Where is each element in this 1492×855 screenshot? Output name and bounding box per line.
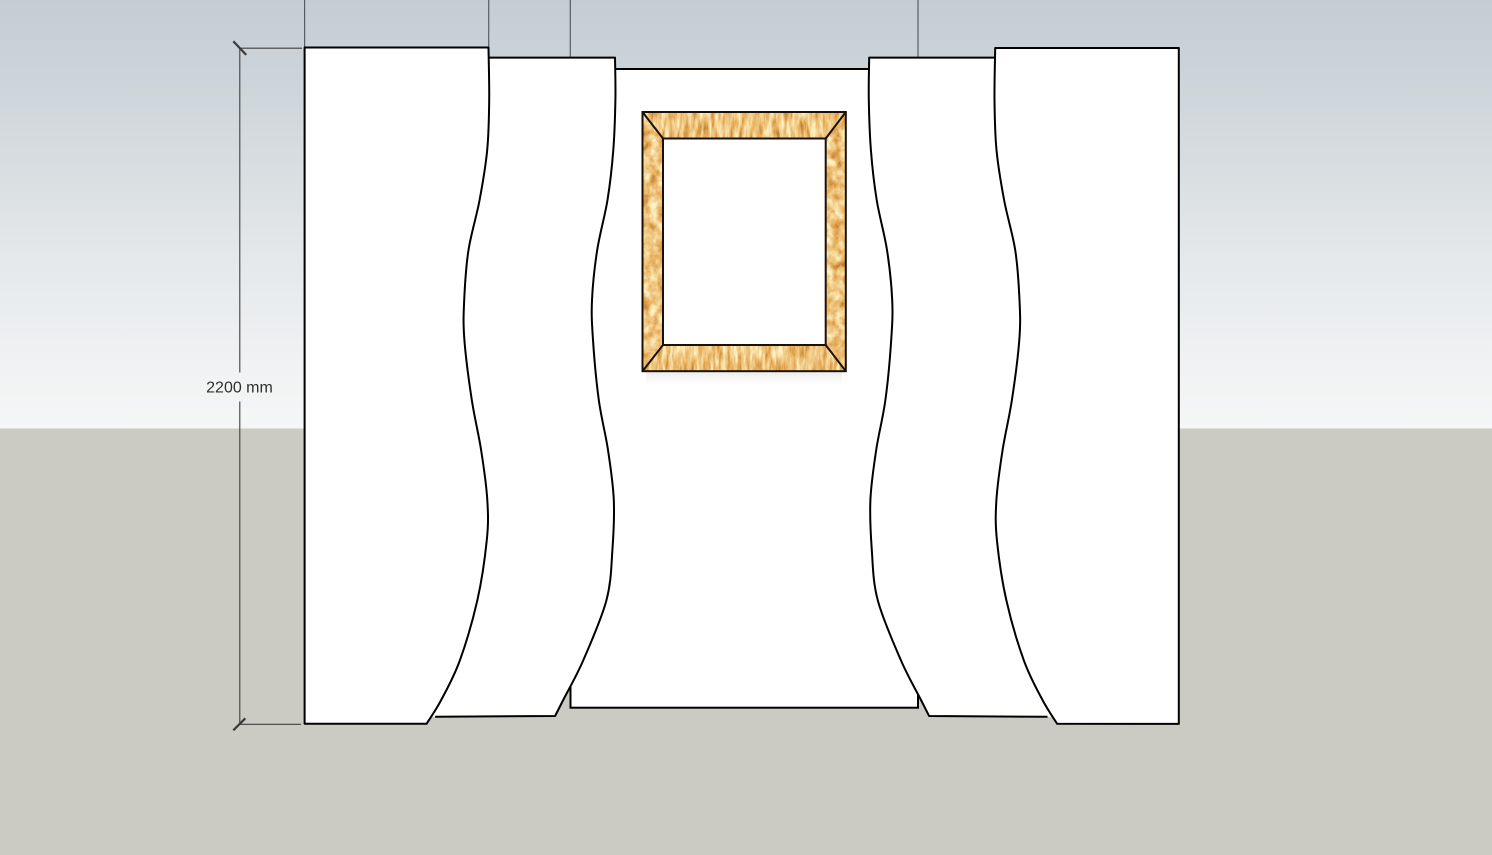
svg-text:2200 mm: 2200 mm: [206, 380, 273, 397]
